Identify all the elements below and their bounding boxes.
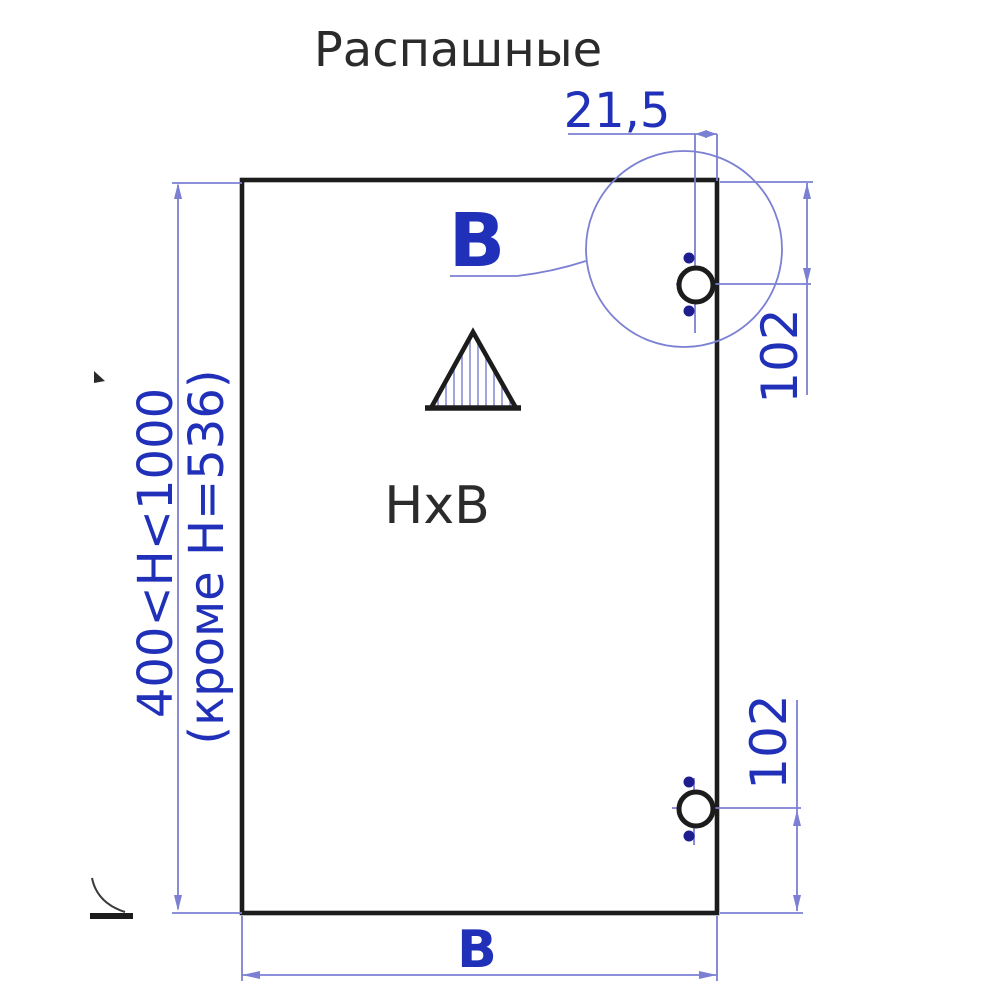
drawing-svg: 400<H<1000 (кроме H=536) 21,5 B	[0, 0, 1000, 1000]
hole-circle-icon	[679, 268, 713, 302]
height-range-text-line2: (кроме H=536)	[179, 369, 235, 744]
arrow-down-icon	[174, 895, 182, 911]
arrow-up-icon	[803, 183, 811, 199]
screw-dot-icon	[684, 831, 695, 842]
width-dim-text: B	[457, 920, 497, 980]
hinge-top-dimension: 102	[720, 182, 813, 404]
hinge-bottom-dim-text: 102	[740, 694, 798, 789]
hinge-top-dim-text: 102	[751, 308, 809, 403]
surface-finish-mark	[90, 878, 133, 916]
detail-leader: B	[449, 198, 586, 284]
width-dimension: B	[242, 916, 717, 981]
screw-dot-icon	[684, 306, 695, 317]
hinge-offset-text: 21,5	[564, 83, 671, 139]
speck-mark	[94, 371, 105, 383]
arrow-down-icon	[793, 895, 801, 911]
arrow-down-icon	[803, 268, 811, 284]
arrow-up-icon	[174, 183, 182, 199]
drawing-title: Распашные	[314, 22, 602, 78]
door-panel-outline	[242, 180, 717, 913]
arrow-right-icon	[699, 971, 717, 979]
glass-triangle-symbol	[425, 330, 521, 410]
screw-dot-icon	[684, 777, 695, 788]
hinge-bottom-dimension: 102	[720, 694, 803, 913]
height-dimension: 400<H<1000 (кроме H=536)	[128, 183, 242, 913]
height-range-text-line1: 400<H<1000	[128, 388, 184, 718]
technical-drawing-swing-door: 400<H<1000 (кроме H=536) 21,5 B	[0, 0, 1000, 1000]
arrow-left-icon	[242, 971, 260, 979]
screw-dot-icon	[684, 253, 695, 264]
arrow-right-icon	[705, 130, 717, 138]
detail-label-text: B	[449, 198, 505, 284]
panel-size-text: HxB	[384, 476, 490, 536]
hinge-hole-top	[676, 253, 811, 317]
arrow-up-icon	[793, 810, 801, 826]
hole-circle-icon	[679, 792, 713, 826]
